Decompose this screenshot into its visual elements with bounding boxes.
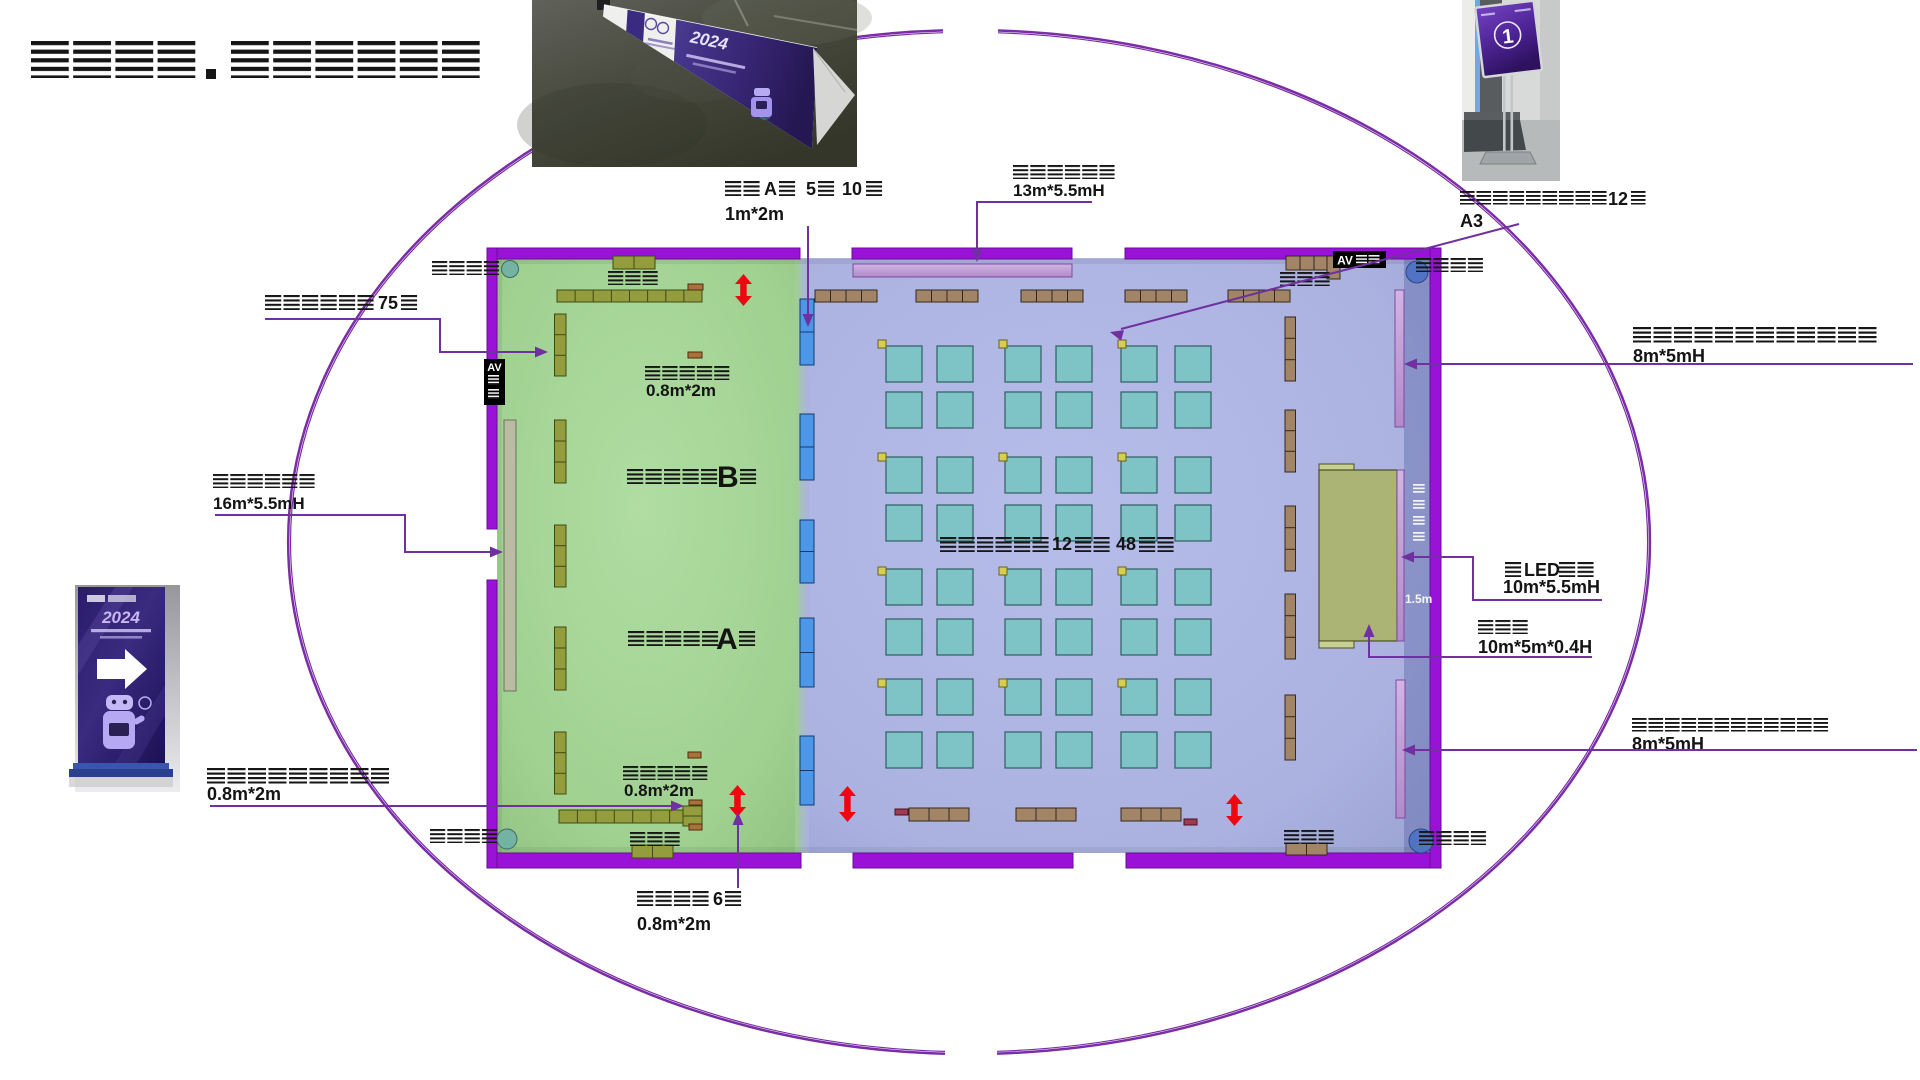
- svg-text:A: A: [764, 179, 777, 199]
- svg-text:0.8m*2m: 0.8m*2m: [637, 914, 711, 934]
- svg-text:12: 12: [1608, 189, 1628, 209]
- svg-text:0.8m*2m: 0.8m*2m: [207, 784, 281, 804]
- svg-text:0.8m*2m: 0.8m*2m: [624, 781, 694, 800]
- svg-text:AV: AV: [1337, 254, 1353, 268]
- svg-text:5: 5: [806, 179, 816, 199]
- svg-text:A: A: [716, 623, 738, 656]
- svg-text:10m*5.5mH: 10m*5.5mH: [1503, 577, 1600, 597]
- svg-text:10: 10: [842, 179, 862, 199]
- svg-text:12: 12: [1052, 534, 1072, 554]
- svg-text:B: B: [717, 461, 739, 494]
- svg-text:48: 48: [1116, 534, 1136, 554]
- svg-text:0.8m*2m: 0.8m*2m: [646, 381, 716, 400]
- svg-text:1m*2m: 1m*2m: [725, 204, 784, 224]
- svg-text:75: 75: [378, 293, 398, 313]
- svg-text:6: 6: [713, 889, 723, 909]
- svg-text:AV: AV: [487, 362, 502, 374]
- svg-text:1.5m: 1.5m: [1405, 592, 1432, 606]
- svg-text:A3: A3: [1460, 211, 1483, 231]
- svg-text:10m*5m*0.4H: 10m*5m*0.4H: [1478, 637, 1592, 657]
- svg-text:2024: 2024: [101, 608, 140, 627]
- svg-text:16m*5.5mH: 16m*5.5mH: [213, 494, 305, 513]
- svg-text:13m*5.5mH: 13m*5.5mH: [1013, 181, 1105, 200]
